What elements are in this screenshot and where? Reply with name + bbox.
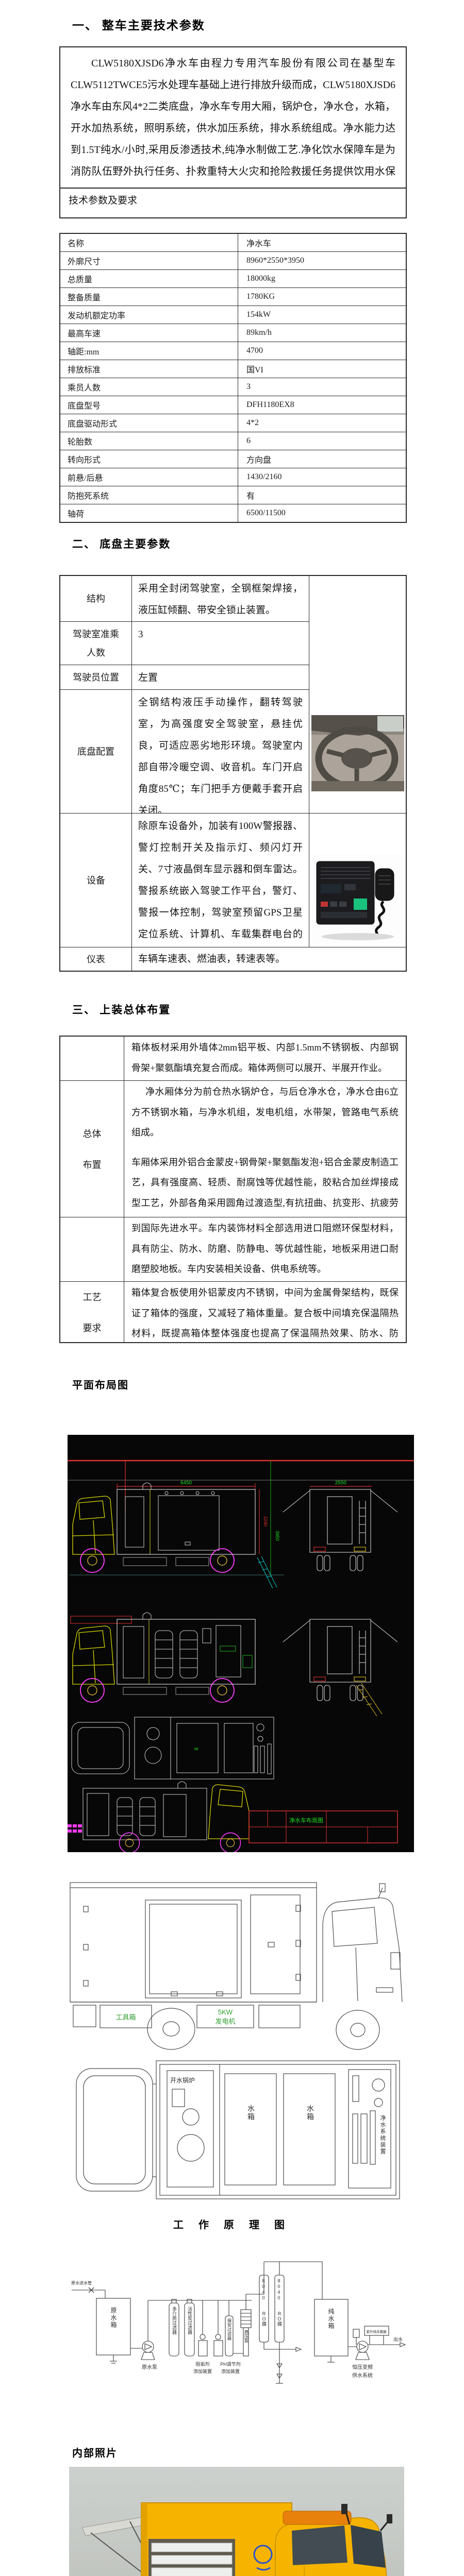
raw-tank-label: 原水箱 (109, 2307, 118, 2329)
toolbox-label: 工具箱 (115, 2013, 136, 2021)
table-row: 底盘型号 DFH1180EX8 (60, 396, 406, 414)
body-text: 箱体板材采用外墙体2mm铝平板、内部1.5mm不锈钢板、内部钢骨架+聚氨酯填充复… (124, 1037, 406, 1080)
tank1-label: 水箱 (246, 2105, 256, 2121)
hp-pump-label: 高压泵 (243, 2330, 250, 2343)
steering-wheel-image (311, 715, 404, 791)
spec-value: 6500/11500 (238, 504, 406, 522)
chassis-label: 底盘配置 (60, 689, 131, 813)
table-row: 轴距:mm 4700 (60, 342, 406, 360)
intro-box: CLW5180XJSD6净水车由程力专用汽车股份有限公司在基型车CLW5112T… (59, 46, 407, 218)
spec-value: 1780KG (238, 288, 406, 306)
filter2-label: 活性炭过滤器 (187, 2307, 193, 2334)
boiler-label: 开水锅炉 (170, 2076, 195, 2084)
chassis-text: 除原车设备外，加装有100W警报器、警灯控制开关及指示灯、频闪灯开关、7寸液晶倒… (131, 813, 309, 947)
system-label: 净水系统装置 (378, 2115, 387, 2155)
label-line: 要求 (83, 1321, 102, 1334)
dosing2-label-line1: PH调节剂 (212, 2361, 248, 2367)
spec-label: 转向形式 (60, 450, 238, 468)
generator-label-line2: 发电机 (215, 2018, 235, 2025)
chassis-text: 采用全封闭驾驶室，全钢框架焊接，液压缸倾翻、带安全锁止装置。 (131, 576, 309, 621)
body-text: 净水厢体分为前仓热水锅炉仓，与后仓净水仓，净水仓由6立方不锈钢水箱，与净水机组，… (124, 1080, 406, 1217)
spec-value: 1430/2160 (238, 468, 406, 486)
table-row: 防抱死系统 有 (60, 486, 406, 504)
photos-heading: 内部照片 (72, 2445, 118, 2460)
spec-label: 乘员人数 (60, 378, 238, 396)
table-row: 前悬/后悬 1430/2160 (60, 468, 406, 486)
spec-label: 防抱死系统 (60, 486, 238, 504)
outlet-label: 出水 (393, 2336, 403, 2342)
spec-value: 净水车 (238, 234, 406, 251)
spec-value: 18000kg (238, 270, 406, 287)
spec-value: 6 (238, 432, 406, 450)
spec-label: 轮胎数 (60, 432, 238, 450)
elevation-drawing: 工具箱 5KW 发电机 (69, 1875, 407, 2050)
spec-value: 国VI (238, 360, 406, 378)
spec-label: 名称 (60, 234, 238, 251)
dim-box-height: 2240 (263, 1516, 268, 1527)
steering-wheel-photo (309, 576, 406, 813)
section2-heading: 二、 底盘主要参数 (72, 536, 171, 551)
spec-value: 154kW (238, 306, 406, 324)
uv-sterilizer-label: 紫外线杀菌器 (367, 2329, 387, 2334)
table-row: 最高车速 89km/h (60, 324, 406, 342)
plan-heading: 平面布局图 (72, 1377, 129, 1392)
body-label-empty (60, 1217, 124, 1281)
spec-value: 4*2 (238, 414, 406, 432)
chassis-label: 驾驶员位置 (60, 665, 131, 689)
intro-paragraph: CLW5180XJSD6净水车由程力专用汽车股份有限公司在基型车CLW5112T… (60, 47, 406, 189)
svg-text:88: 88 (194, 1748, 198, 1751)
pure-tank-label: 纯水箱 (327, 2308, 336, 2330)
spec-label: 外廓尺寸 (60, 252, 238, 269)
dim-width: 2550 (335, 1480, 347, 1486)
body-label-overall: 总体 布置 (60, 1080, 124, 1217)
spec-label: 底盘型号 (60, 396, 238, 414)
vehicle-spec-table: 名称 净水车 外廓尺寸 8960*2550*3950 总质量 18000kg 整… (59, 233, 407, 523)
supply-label-line1: 恒压变频 (345, 2363, 379, 2370)
table-row: 名称 净水车 (60, 234, 406, 251)
ro2-name-label: RO膜 (276, 2311, 283, 2326)
tank2-label: 水箱 (305, 2105, 316, 2121)
table-row: 排放标准 国VI (60, 360, 406, 378)
spec-value: 89km/h (238, 324, 406, 342)
spec-value: 8960*2550*3950 (238, 252, 406, 269)
supply-label-line2: 供水系统 (345, 2371, 379, 2379)
raw-pump-label: 原水泵 (135, 2363, 164, 2370)
spec-label: 总质量 (60, 270, 238, 287)
label-line: 总体 (83, 1127, 102, 1140)
body-layout-table: 箱体板材采用外墙体2mm铝平板、内部1.5mm不锈钢板、内部钢骨架+聚氨酯填充复… (59, 1036, 407, 1343)
table-row: 底盘驱动形式 4*2 (60, 414, 406, 432)
section3-heading: 三、 上装总体布置 (72, 1002, 171, 1017)
ro1-name-label: RO膜 (261, 2311, 268, 2326)
chassis-text: 3 (131, 621, 309, 665)
table-row: 轮胎数 6 (60, 432, 406, 450)
photo-front-view (69, 2467, 404, 2576)
spec-label: 轴荷 (60, 504, 238, 522)
table-row: 总质量 18000kg (60, 269, 406, 287)
chassis-label: 设备 (60, 813, 131, 947)
label-line: 布置 (83, 1158, 102, 1171)
table-row: 转向形式 方向盘 (60, 450, 406, 468)
body-paragraph: 净水厢体分为前仓热水锅炉仓，与后仓净水仓，净水仓由6立方不锈钢水箱，与净水机组，… (131, 1082, 399, 1143)
inlet-label: 原水进水管 (71, 2280, 92, 2286)
spec-label: 前悬/后悬 (60, 468, 238, 486)
cad-title: 净水车布局图 (289, 1817, 323, 1824)
body-label-empty (60, 1037, 124, 1080)
table-row: 轴荷 6500/11500 (60, 504, 406, 522)
spec-label: 排放标准 (60, 360, 238, 378)
spec-label: 最高车速 (60, 324, 238, 342)
label-line: 工艺 (83, 1290, 102, 1303)
body-label-process: 工艺 要求 (60, 1281, 124, 1342)
chassis-label: 结构 (60, 576, 131, 621)
generator-label-line1: 5KW (218, 2008, 233, 2016)
chassis-text: 全钢结构液压手动操作，翻转驾驶室，为高强度安全驾驶室，悬挂优良，可适应恶劣地形环… (131, 689, 309, 813)
chassis-text: 车辆车速表、燃油表，转速表等。 (131, 947, 406, 971)
spec-label: 轴距:mm (60, 342, 238, 360)
spec-label: 整备质量 (60, 288, 238, 306)
table-row: 乘员人数 3 (60, 378, 406, 396)
body-text: 到国际先进水平。车内装饰材料全部选用进口阻燃环保型材料，具有防尘、防水、防磨、防… (124, 1217, 406, 1281)
table-row: 发动机额定功率 154kW (60, 306, 406, 324)
spec-value: 4700 (238, 342, 406, 360)
dosing2-label-line2: 添加装置 (212, 2368, 248, 2375)
chassis-table: 结构 采用全封闭驾驶室，全钢框架焊接，液压缸倾翻、带安全锁止装置。 驾驶室准乘人… (59, 575, 407, 972)
table-row: 整备质量 1780KG (60, 287, 406, 306)
dim-total-height: 3950 (275, 1531, 280, 1541)
filter1-label: 多介质过滤器 (171, 2307, 178, 2334)
table-row: 外廓尺寸 8960*2550*3950 (60, 251, 406, 269)
spec-label: 底盘驱动形式 (60, 414, 238, 432)
chassis-text: 左置 (131, 665, 309, 689)
body-paragraph: 车厢体采用外铝合金蒙皮+钢骨架+聚氨酯发泡+铝合金蒙皮制造工艺，具有强度高、轻质… (131, 1153, 399, 1217)
spec-label: 发动机额定功率 (60, 306, 238, 324)
requirements-label: 技术参数及要求 (60, 189, 406, 217)
spec-value: 方向盘 (238, 450, 406, 468)
spec-value: DFH1180EX8 (238, 396, 406, 414)
chassis-label: 驾驶室准乘人数 (60, 621, 131, 665)
principle-heading: 工 作 原 理 图 (0, 2216, 464, 2231)
guard-filter-label: 保安过滤器 (226, 2318, 233, 2341)
document-page: 一、 整车主要技术参数 CLW5180XJSD6净水车由程力专用汽车股份有限公司… (0, 0, 464, 2576)
flow-diagram: 紫外线杀菌器 出水 原水进水管 原水箱 原水泵 多介质过滤器 活性炭过滤器 阻垢… (69, 2256, 409, 2431)
section1-heading: 一、 整车主要技术参数 (72, 15, 205, 33)
body-text: 箱体复合板使用外铝蒙皮内不锈钢，中间为金属骨架结构，既保证了箱体的强度，又减轻了… (124, 1281, 406, 1342)
spec-value: 有 (238, 486, 406, 504)
ro2-size-label: 8040 (276, 2278, 281, 2301)
ro1-size-label: 8040 (261, 2278, 266, 2301)
chassis-label: 仪表 (60, 947, 131, 971)
siren-control-photo (309, 813, 406, 947)
cad-layout-drawing: 6450 2240 3950 (68, 1435, 414, 1855)
spec-value: 3 (238, 378, 406, 396)
dim-length: 6450 (180, 1480, 192, 1486)
plan-drawing: 开水锅炉 水箱 水箱 净水系统装置 (69, 2053, 407, 2208)
siren-control-image (312, 854, 403, 943)
